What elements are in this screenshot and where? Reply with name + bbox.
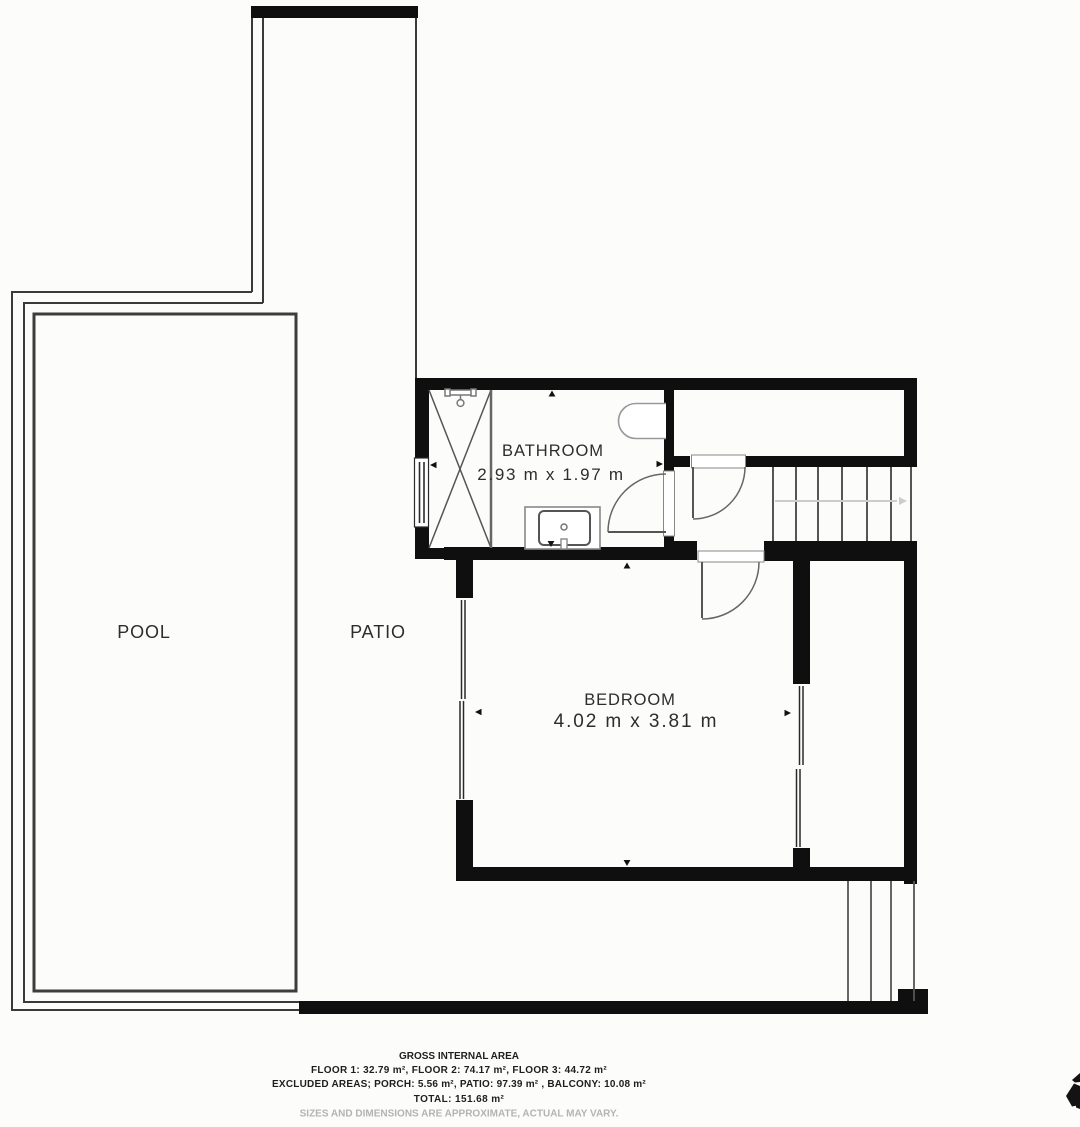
svg-text:FLOOR 1: 32.79 m², FLOOR 2: 74: FLOOR 1: 32.79 m², FLOOR 2: 74.17 m², FL… xyxy=(311,1065,607,1076)
svg-text:2.93 m x 1.97 m: 2.93 m x 1.97 m xyxy=(477,465,624,484)
svg-text:PATIO: PATIO xyxy=(350,622,406,642)
svg-text:4.02 m x 3.81 m: 4.02 m x 3.81 m xyxy=(554,711,719,732)
svg-text:POOL: POOL xyxy=(117,622,171,642)
svg-text:EXCLUDED AREAS; PORCH: 5.56 m²: EXCLUDED AREAS; PORCH: 5.56 m², PATIO: 9… xyxy=(272,1079,646,1090)
svg-text:BEDROOM: BEDROOM xyxy=(584,691,676,709)
svg-text:SIZES AND DIMENSIONS ARE APPRO: SIZES AND DIMENSIONS ARE APPROXIMATE, AC… xyxy=(300,1109,619,1120)
svg-text:TOTAL: 151.68 m²: TOTAL: 151.68 m² xyxy=(414,1094,505,1105)
svg-text:BATHROOM: BATHROOM xyxy=(502,442,604,460)
svg-text:GROSS INTERNAL AREA: GROSS INTERNAL AREA xyxy=(399,1051,519,1062)
